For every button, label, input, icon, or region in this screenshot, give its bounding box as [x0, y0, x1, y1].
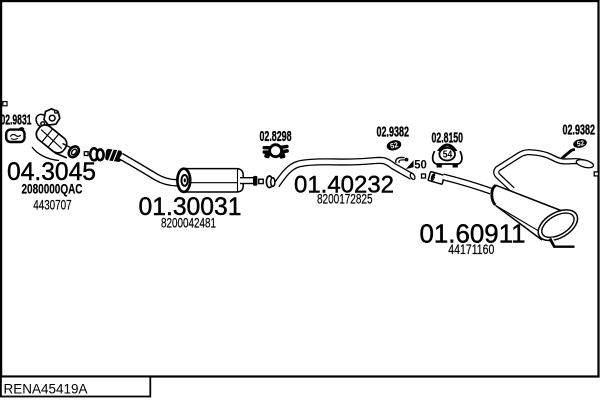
svg-text:50: 50: [414, 158, 427, 172]
svg-text:8200172825: 8200172825: [317, 191, 373, 207]
svg-text:02.9382: 02.9382: [377, 124, 410, 141]
svg-text:8200042481: 8200042481: [161, 214, 216, 230]
svg-text:02.8298: 02.8298: [260, 128, 292, 145]
svg-text:44171160: 44171160: [448, 241, 494, 257]
svg-text:02.9382: 02.9382: [563, 122, 596, 139]
svg-text:RENA45419A: RENA45419A: [4, 381, 88, 396]
svg-text:4430707: 4430707: [33, 196, 72, 212]
svg-text:2080000QAC: 2080000QAC: [22, 180, 83, 196]
svg-text:54: 54: [443, 150, 453, 161]
svg-text:02.9831: 02.9831: [1, 112, 32, 129]
